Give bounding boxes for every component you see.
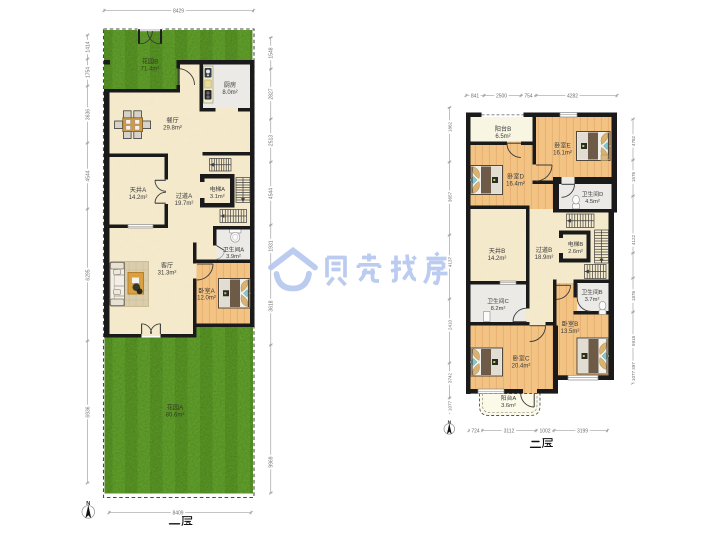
svg-text:电梯B: 电梯B (568, 240, 584, 248)
svg-text:1876: 1876 (631, 290, 636, 301)
svg-text:客厅: 客厅 (161, 262, 173, 270)
svg-text:2827: 2827 (269, 88, 275, 99)
svg-text:N: N (86, 501, 90, 507)
svg-text:3742: 3742 (447, 372, 452, 383)
svg-text:3.9m²: 3.9m² (226, 254, 241, 260)
svg-text:19.7m²: 19.7m² (175, 201, 194, 207)
svg-text:3636: 3636 (85, 109, 91, 120)
svg-text:天井B: 天井B (489, 247, 506, 255)
svg-text:卧室B: 卧室B (562, 320, 579, 328)
svg-text:2410: 2410 (447, 319, 452, 330)
svg-text:3.6m²: 3.6m² (501, 403, 516, 409)
svg-text:2513: 2513 (269, 135, 275, 146)
svg-text:6.5m²: 6.5m² (495, 134, 510, 140)
svg-text:20.4m²: 20.4m² (512, 364, 531, 370)
svg-text:897: 897 (631, 362, 636, 370)
svg-text:8409: 8409 (172, 510, 183, 516)
svg-text:过道B: 过道B (536, 246, 553, 254)
svg-text:2500: 2500 (496, 93, 507, 99)
svg-text:14.2m²: 14.2m² (488, 256, 507, 262)
svg-text:3.7m²: 3.7m² (585, 297, 600, 303)
svg-text:16.4m²: 16.4m² (506, 182, 525, 188)
svg-text:1077: 1077 (631, 370, 636, 381)
svg-text:1548: 1548 (269, 47, 275, 58)
svg-text:卧室A: 卧室A (198, 287, 215, 295)
svg-text:4.5m²: 4.5m² (585, 199, 600, 205)
svg-text:3112: 3112 (504, 428, 515, 434)
svg-text:6936: 6936 (85, 406, 91, 417)
svg-text:电梯A: 电梯A (210, 185, 226, 193)
svg-text:724: 724 (471, 428, 480, 434)
svg-text:1754: 1754 (85, 67, 91, 78)
svg-text:12.0m²: 12.0m² (197, 296, 216, 302)
svg-text:71.4m²: 71.4m² (141, 67, 160, 73)
svg-text:N: N (448, 419, 452, 425)
svg-text:花园A: 花园A (167, 404, 184, 412)
svg-text:卧室E: 卧室E (554, 142, 571, 150)
svg-text:餐厅: 餐厅 (166, 117, 178, 125)
svg-text:29.8m²: 29.8m² (163, 126, 182, 132)
svg-text:阳台A: 阳台A (501, 394, 517, 402)
svg-text:14.2m²: 14.2m² (129, 195, 148, 201)
svg-text:8.0m²: 8.0m² (222, 90, 237, 96)
svg-text:18.9m²: 18.9m² (535, 255, 554, 261)
svg-text:卧室C: 卧室C (513, 355, 530, 363)
svg-text:4782: 4782 (631, 135, 636, 146)
svg-text:31.3m²: 31.3m² (158, 271, 177, 277)
svg-text:卧室D: 卧室D (507, 173, 524, 181)
svg-text:过道A: 过道A (176, 192, 193, 200)
svg-text:80.6m²: 80.6m² (166, 413, 185, 419)
svg-text:6295: 6295 (85, 269, 91, 280)
svg-text:8429: 8429 (173, 8, 184, 14)
svg-text:4544: 4544 (85, 170, 91, 181)
svg-text:754: 754 (524, 93, 533, 99)
svg-text:4137: 4137 (447, 256, 452, 267)
svg-text:9969: 9969 (269, 456, 275, 467)
svg-text:1576: 1576 (631, 171, 636, 182)
svg-text:4282: 4282 (567, 93, 578, 99)
svg-text:16.1m²: 16.1m² (553, 151, 572, 157)
svg-text:4544: 4544 (269, 188, 275, 199)
svg-text:1002: 1002 (539, 428, 550, 434)
svg-text:卫生间D: 卫生间D (582, 190, 604, 198)
svg-text:厨房: 厨房 (224, 81, 236, 89)
svg-text:1931: 1931 (269, 240, 275, 251)
svg-text:1077: 1077 (447, 400, 452, 411)
svg-text:13.5m²: 13.5m² (561, 329, 580, 335)
svg-text:841: 841 (471, 93, 480, 99)
svg-text:3657: 3657 (447, 191, 452, 202)
svg-text:8.2m²: 8.2m² (491, 306, 506, 312)
svg-text:3199: 3199 (577, 428, 588, 434)
svg-text:4122: 4122 (631, 234, 636, 245)
svg-text:花园B: 花园B (142, 58, 159, 66)
svg-text:3618: 3618 (269, 300, 275, 311)
svg-text:天井A: 天井A (130, 186, 147, 194)
svg-text:阳台B: 阳台B (495, 125, 512, 133)
svg-text:2.6m²: 2.6m² (568, 249, 583, 255)
svg-text:5918: 5918 (631, 335, 636, 346)
svg-text:卫生间A: 卫生间A (223, 246, 244, 254)
svg-text:1414: 1414 (85, 41, 91, 52)
svg-text:卫生间B: 卫生间B (581, 288, 602, 296)
svg-text:3.1m²: 3.1m² (210, 194, 225, 200)
svg-text:1862: 1862 (447, 121, 452, 132)
svg-text:卫生间C: 卫生间C (487, 297, 509, 305)
